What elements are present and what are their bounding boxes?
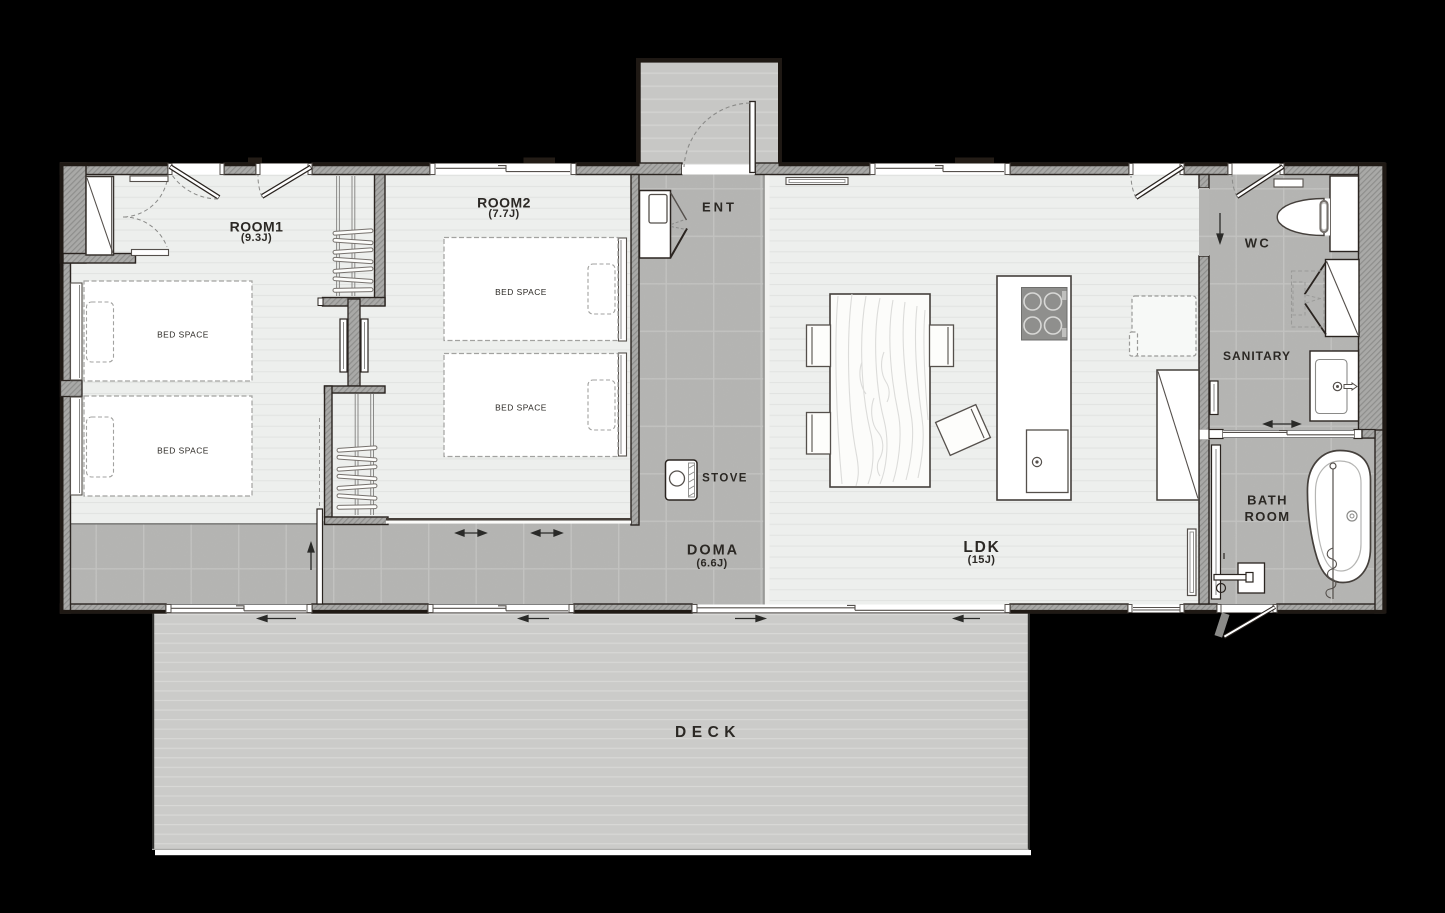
svg-text:DOMA: DOMA xyxy=(687,543,739,559)
svg-text:BED SPACE: BED SPACE xyxy=(495,403,547,413)
svg-text:(9.3J): (9.3J) xyxy=(241,232,272,244)
svg-text:BATH: BATH xyxy=(1247,493,1288,508)
svg-text:STOVE: STOVE xyxy=(702,473,748,485)
svg-text:WC: WC xyxy=(1245,236,1271,251)
svg-text:ENT: ENT xyxy=(702,200,737,215)
svg-text:BED SPACE: BED SPACE xyxy=(157,330,209,340)
svg-text:DECK: DECK xyxy=(675,724,741,741)
svg-text:(6.6J): (6.6J) xyxy=(696,558,727,570)
svg-text:BED SPACE: BED SPACE xyxy=(157,446,209,456)
svg-text:(15J): (15J) xyxy=(968,554,996,566)
svg-text:ROOM: ROOM xyxy=(1244,509,1290,524)
svg-text:BED SPACE: BED SPACE xyxy=(495,287,547,297)
svg-text:SANITARY: SANITARY xyxy=(1223,349,1291,363)
svg-text:(7.7J): (7.7J) xyxy=(488,208,519,220)
